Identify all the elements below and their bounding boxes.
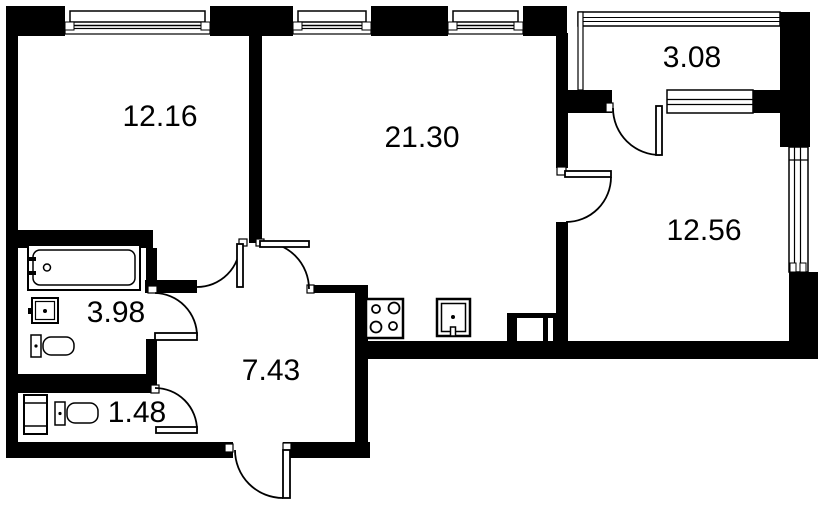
toilet-icon-wc [55,402,98,425]
room-label-kitchen-living: 21.30 [384,121,459,155]
room-label-hallway: 7.43 [242,354,300,388]
wall-balcony-bottom [556,90,612,113]
room-label-wc: 1.48 [108,396,166,430]
jamb-bathroom-door [148,286,157,293]
jamb-entrance-left [225,444,233,452]
room-label-balcony: 3.08 [663,41,721,75]
door-swing-icon-bedroom2 [565,171,611,222]
wall-bottom-left-seg2 [283,442,370,458]
wall-top-seg2 [210,6,293,36]
window-icon-balcony [667,90,753,113]
door-swing-icon-kitchen [260,241,309,289]
room-label-bathroom: 3.98 [87,296,145,330]
door-swing-icon-entrance [235,450,290,498]
wall-divider-bedroom-kitchen [249,33,262,243]
kitchen-sink-icon [437,299,470,336]
door-jambs [148,103,613,452]
vent-shaft-icon [507,313,562,341]
jamb-wc-door [151,385,159,393]
wall-bottom-left-seg1 [6,442,233,458]
bathtub-icon [27,245,140,290]
room-label-bedroom: 12.16 [122,100,197,134]
toilet-icon-bathroom [31,335,74,357]
door-swing-icon-balcony [613,106,662,155]
window-icon-kitchen-2 [448,6,523,36]
wall-top-seg3 [371,6,448,36]
room-label-bedroom2: 12.56 [666,214,741,248]
floor-plan: 12.16 21.30 3.08 12.56 3.98 7.43 1.48 [0,0,830,505]
window-icon-bedroom2-right [789,147,808,272]
jamb-balcony-door [606,103,613,112]
window-icon-kitchen-1 [293,6,371,36]
wall-right-upper [780,12,810,147]
wall-hallway-top-right [310,285,362,293]
wall-top-seg4 [523,6,567,36]
windows-top [65,6,523,36]
door-swing-icon-bedroom [197,244,243,287]
doors [155,106,662,498]
wall-top-seg1 [6,6,65,36]
wall-bottom-right [368,341,818,359]
wall-bathroom-bottom [6,374,157,393]
stove-icon [366,299,403,338]
door-swing-icon-bathroom [155,293,197,340]
washing-machine-icon [24,395,47,434]
window-icon-bedroom [65,6,210,36]
bath-sink-icon [28,298,58,323]
wall-balcony-bottom-right [753,90,782,113]
